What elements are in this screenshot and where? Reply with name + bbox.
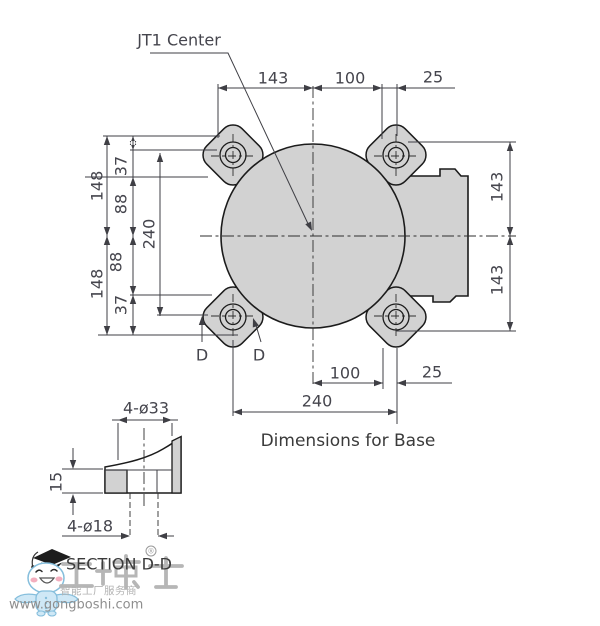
dim-bottom-25: 25 (422, 363, 442, 382)
dim-counterbore: 4-ø33 (123, 399, 169, 418)
section-caption: SECTION D-D (66, 555, 172, 574)
watermark-tagline: 智能工厂服务商 (60, 584, 137, 597)
dim-left-88-bottom: 88 (107, 252, 126, 272)
jt1-center-callout: JT1 Center (136, 31, 221, 50)
section-cut-material-left (105, 470, 127, 493)
dim-bottom-240: 240 (302, 392, 333, 411)
dim-top-100: 100 (335, 69, 366, 88)
dim-left-148-bottom: 148 (88, 269, 107, 300)
dim-left-240: 240 (140, 219, 159, 250)
section-dd-view: 4-ø33 15 4-ø18 SECTION D-D (47, 399, 182, 574)
technical-drawing-canvas: ® 智能工厂服务商 www.gongboshi.com (0, 0, 600, 626)
base-part (198, 86, 516, 384)
section-cut-material-right (172, 437, 181, 494)
dim-thickness: 15 (47, 472, 66, 492)
watermark-url: www.gongboshi.com (9, 598, 143, 613)
dim-top-143: 143 (258, 69, 289, 88)
dim-right-143-top: 143 (488, 172, 507, 203)
dim-left-37-bottom: 37 (112, 295, 131, 315)
dim-bottom-100: 100 (330, 364, 361, 383)
cut-label-d-left: D (196, 346, 208, 365)
dim-left-148-top: 148 (88, 171, 107, 202)
cut-label-d-right: D (253, 346, 265, 365)
dim-right-143-bottom: 143 (488, 265, 507, 296)
drawing-caption: Dimensions for Base (261, 431, 436, 451)
dim-left-88-top: 88 (112, 194, 131, 214)
dim-left-37-top: 37 (112, 156, 131, 176)
dim-through-hole: 4-ø18 (67, 517, 113, 536)
dim-top-25: 25 (423, 68, 443, 87)
